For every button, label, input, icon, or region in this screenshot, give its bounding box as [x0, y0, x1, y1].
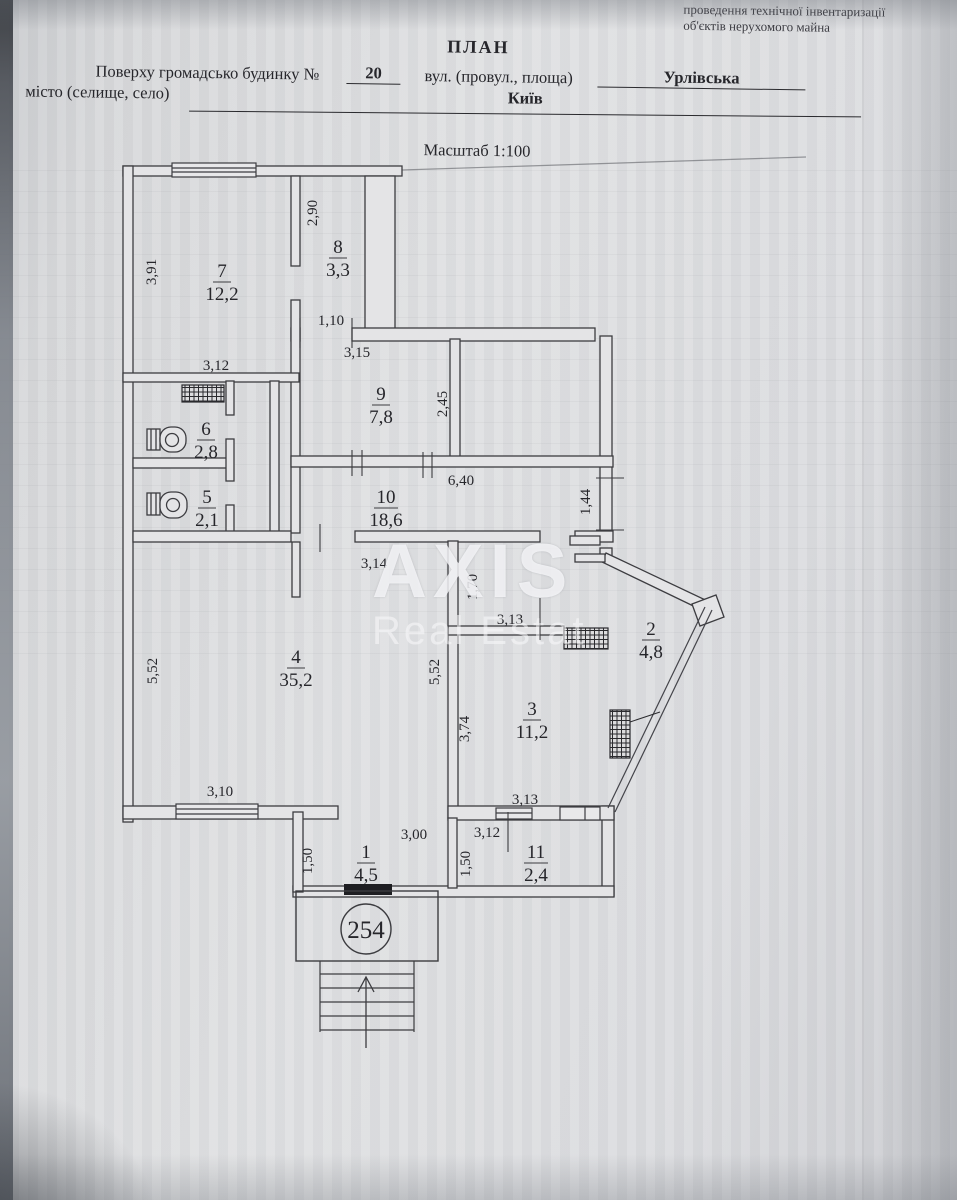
dimension-label: 3,00	[401, 827, 427, 843]
wall-room9-right	[450, 339, 460, 464]
stairs-icon	[320, 961, 414, 1032]
dimension-label: 3,10	[207, 784, 233, 800]
dimension-ticks	[300, 318, 624, 852]
wall-top	[123, 166, 402, 176]
room-area: 4,8	[639, 642, 663, 663]
dimension-label: 6,40	[448, 473, 474, 489]
room-number: 2	[646, 619, 656, 640]
door-sill	[560, 807, 600, 820]
room-area: 2,4	[524, 865, 548, 886]
wall-room10-top	[291, 456, 613, 467]
dimension-label: 5,52	[145, 658, 161, 684]
photo-edge-top	[0, 0, 957, 30]
room-area: 7,8	[369, 407, 393, 428]
photo-edge-right	[877, 0, 957, 1200]
dimension-label: 3,13	[512, 792, 538, 808]
room-area: 4,5	[354, 865, 378, 886]
dimension-label: 1,70	[465, 574, 481, 600]
vent-shaft-hatch	[182, 385, 224, 402]
vent-shafts	[182, 385, 660, 758]
room-number: 10	[377, 487, 396, 508]
wall-room8-right	[365, 176, 395, 332]
dimension-label: 1,50	[300, 848, 316, 874]
photo-shadow-corner	[0, 1080, 160, 1200]
door-leaf	[575, 554, 605, 562]
paper-crease-line	[402, 157, 806, 170]
wall-right-upper	[600, 336, 612, 536]
toilet-icon	[147, 427, 186, 452]
dimension-label: 2,45	[435, 391, 451, 417]
dimension-label: 1,44	[578, 488, 594, 515]
room-number: 8	[333, 237, 343, 258]
dimension-label: 3,12	[203, 358, 229, 374]
wall-room1-11-divider	[448, 818, 457, 888]
wall-room10-bottom-b	[355, 531, 540, 542]
dimension-label: 3,15	[344, 345, 370, 361]
room-number: 3	[527, 699, 537, 720]
vent-shaft-hatch	[610, 710, 630, 758]
room-area: 12,2	[205, 284, 238, 305]
door-leaf	[292, 542, 300, 597]
dimension-label: 3,14	[361, 556, 388, 572]
dimension-label: 1,10	[318, 313, 344, 329]
dimension-label: 1,50	[458, 851, 474, 877]
room-number: 9	[376, 384, 386, 405]
door-leaf	[570, 536, 600, 545]
room-number: 5	[202, 487, 212, 508]
vent-shaft-hatch	[564, 628, 608, 649]
wall-left	[123, 166, 133, 822]
toilet-icon	[147, 492, 187, 518]
room-area: 2,8	[194, 442, 218, 463]
room-number: 7	[217, 261, 227, 282]
scanned-floor-plan-photo: проведення технічної інвентаризації об'є…	[0, 0, 957, 1200]
window-symbol	[172, 163, 256, 177]
room-area: 35,2	[279, 670, 312, 691]
room-number: 1	[361, 842, 371, 863]
toilet-fixtures	[147, 427, 187, 518]
wall-room9-top	[352, 328, 595, 341]
room-number: 11	[527, 842, 545, 863]
wall-corridor-left	[291, 300, 300, 533]
room-area: 2,1	[195, 510, 219, 531]
photo-edge-left	[0, 0, 13, 1200]
floor-plan: 254 712,283,397,862,852,11018,624,8435,2…	[0, 0, 957, 1200]
room-area: 3,3	[326, 260, 350, 281]
dimension-label: 3,12	[474, 825, 500, 841]
room-number: 6	[201, 419, 211, 440]
dimension-label: 3,13	[497, 612, 523, 628]
wall-room10-bottom-a	[133, 531, 291, 542]
dimension-label: 3,91	[144, 259, 160, 285]
stamp-number: 254	[347, 917, 385, 944]
wall-wc-mid	[133, 458, 233, 468]
window-symbol	[176, 804, 258, 819]
paper-fold	[862, 0, 864, 1200]
dimension-label: 3,74	[457, 715, 473, 742]
window-symbol	[496, 808, 532, 819]
room-number: 4	[291, 647, 301, 668]
dimension-label: 5,52	[427, 659, 443, 685]
room-area: 18,6	[369, 510, 402, 531]
wall-room3-left	[448, 541, 458, 818]
room-area: 11,2	[516, 722, 549, 743]
up-arrow-icon	[358, 977, 374, 1048]
dimension-label: 2,90	[305, 200, 321, 226]
